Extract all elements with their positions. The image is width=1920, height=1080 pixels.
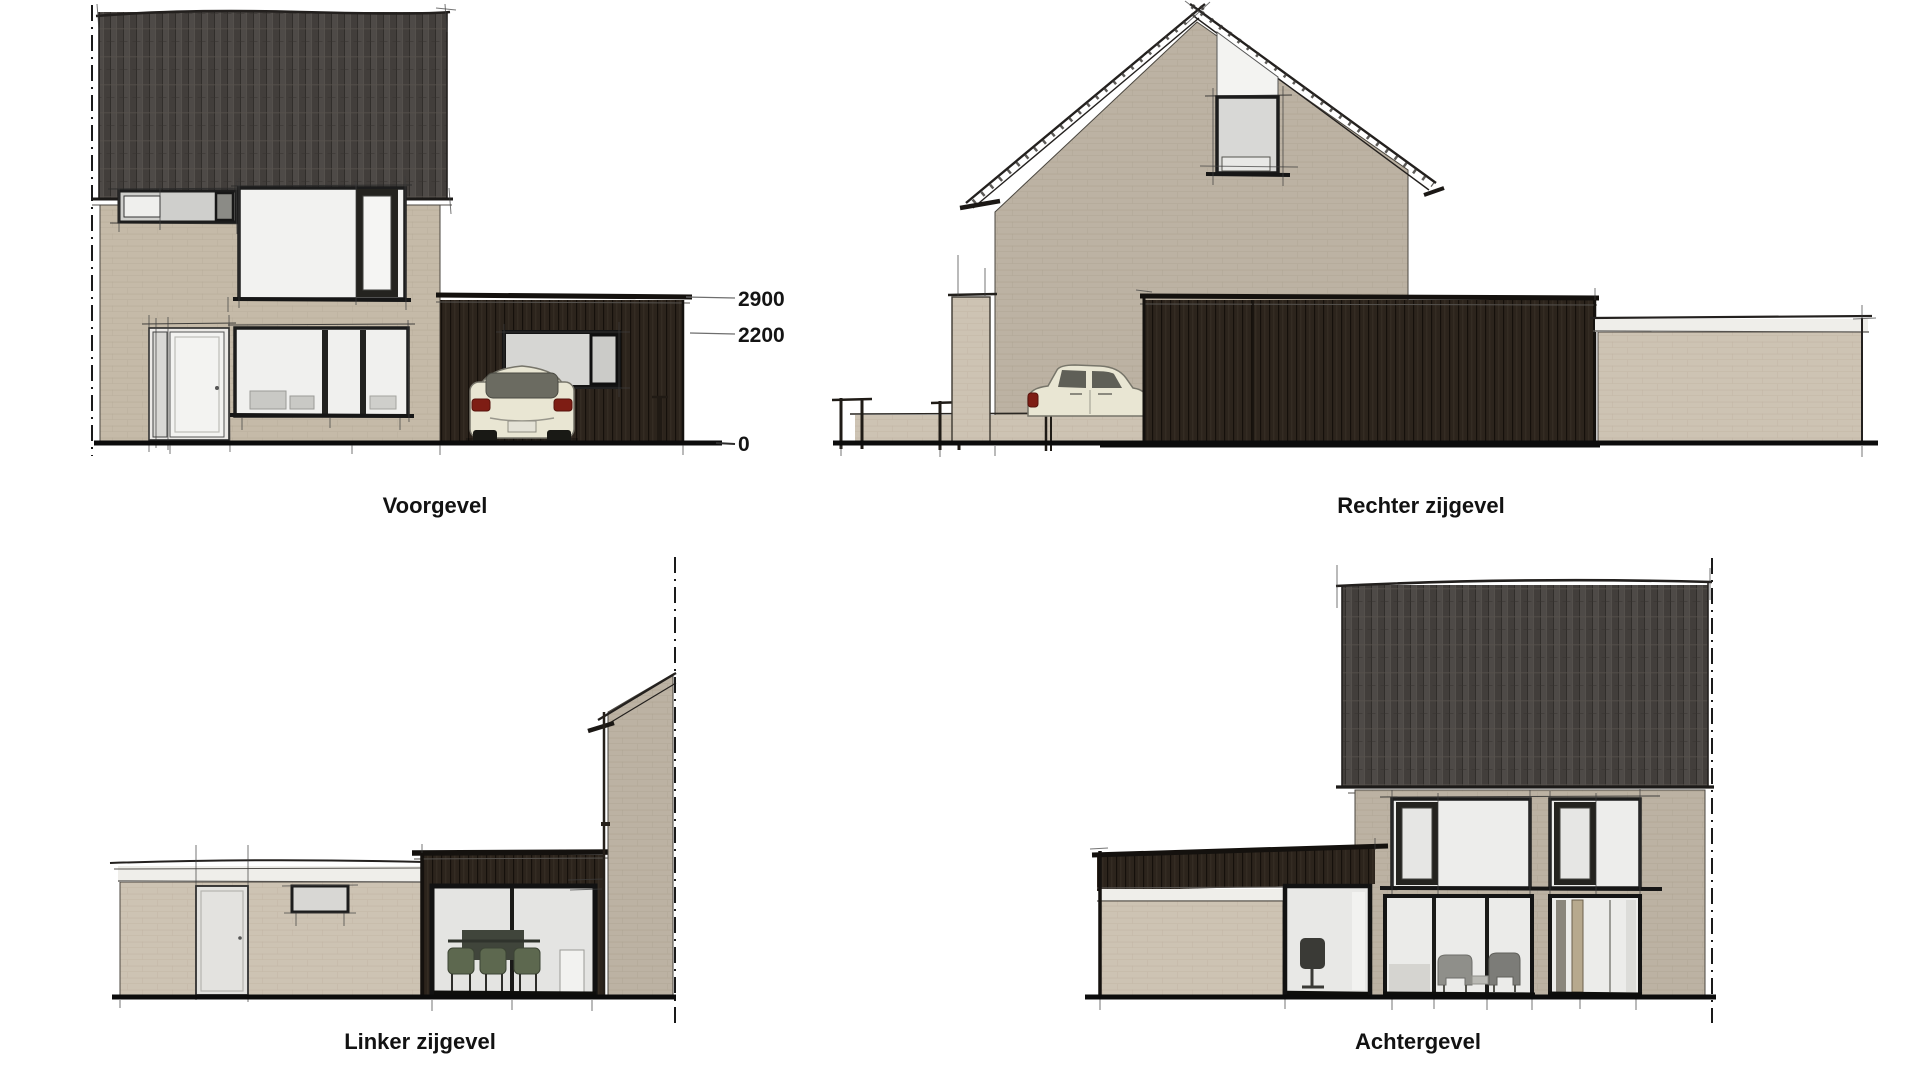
caption-front: Voorgevel [383, 493, 488, 518]
dim-label-2200: 2200 [738, 324, 785, 347]
garden-wall-pillar [948, 255, 997, 443]
left-rear-extension [110, 845, 424, 1002]
dim-label-2900: 2900 [738, 288, 785, 311]
door-leaf [1572, 900, 1583, 992]
front-roof [92, 4, 456, 214]
caption-rear: Achtergevel [1355, 1029, 1481, 1054]
front-dimension-leaders: 2900 2200 0 [686, 288, 785, 456]
rear-extension-white-fascia [1100, 889, 1283, 901]
rear-elevation: Achtergevel [1085, 558, 1716, 1054]
rear-extension [1090, 838, 1388, 1010]
left-main-wall [608, 674, 673, 997]
garden-wall [855, 415, 1144, 443]
left-glass-sliding-door [432, 886, 596, 995]
rear-extension-glass-door [1285, 886, 1370, 995]
rear-extension-wall [1100, 901, 1283, 997]
interior-wall-silhouette [1389, 964, 1430, 992]
dim-label-0: 0 [738, 433, 750, 456]
caption-left: Linker zijgevel [344, 1029, 496, 1054]
taillight [1028, 393, 1038, 407]
rear-lower-openings [1383, 896, 1642, 1010]
caption-right: Rechter zijgevel [1337, 493, 1505, 518]
right-rear-extension [1590, 305, 1876, 443]
taillight [472, 399, 490, 411]
sofa-silhouette [370, 396, 396, 409]
left-elevation: Linker zijgevel [110, 557, 676, 1054]
elevation-sheet: 2900 2200 0 Voorgevel [0, 0, 1920, 1080]
sofa-silhouette [290, 396, 314, 409]
elevation-drawing-canvas: 2900 2200 0 Voorgevel [0, 0, 1920, 1080]
garage-roof-edge [436, 295, 692, 297]
front-upper-large-window [228, 176, 412, 312]
left-garden-room [412, 844, 618, 997]
front-door [142, 315, 236, 452]
front-lower-window [228, 320, 415, 430]
rear-upper-windows [1380, 789, 1662, 900]
sofa-silhouette [250, 391, 286, 409]
right-garage-extension [1136, 288, 1599, 443]
taillight [554, 399, 572, 411]
rear-roof [1336, 565, 1714, 793]
right-elevation: Rechter zijgevel [832, 1, 1878, 518]
downpipe-bracket [601, 822, 610, 826]
interior-door-silhouette [560, 950, 584, 993]
front-elevation: 2900 2200 0 Voorgevel [92, 4, 785, 518]
